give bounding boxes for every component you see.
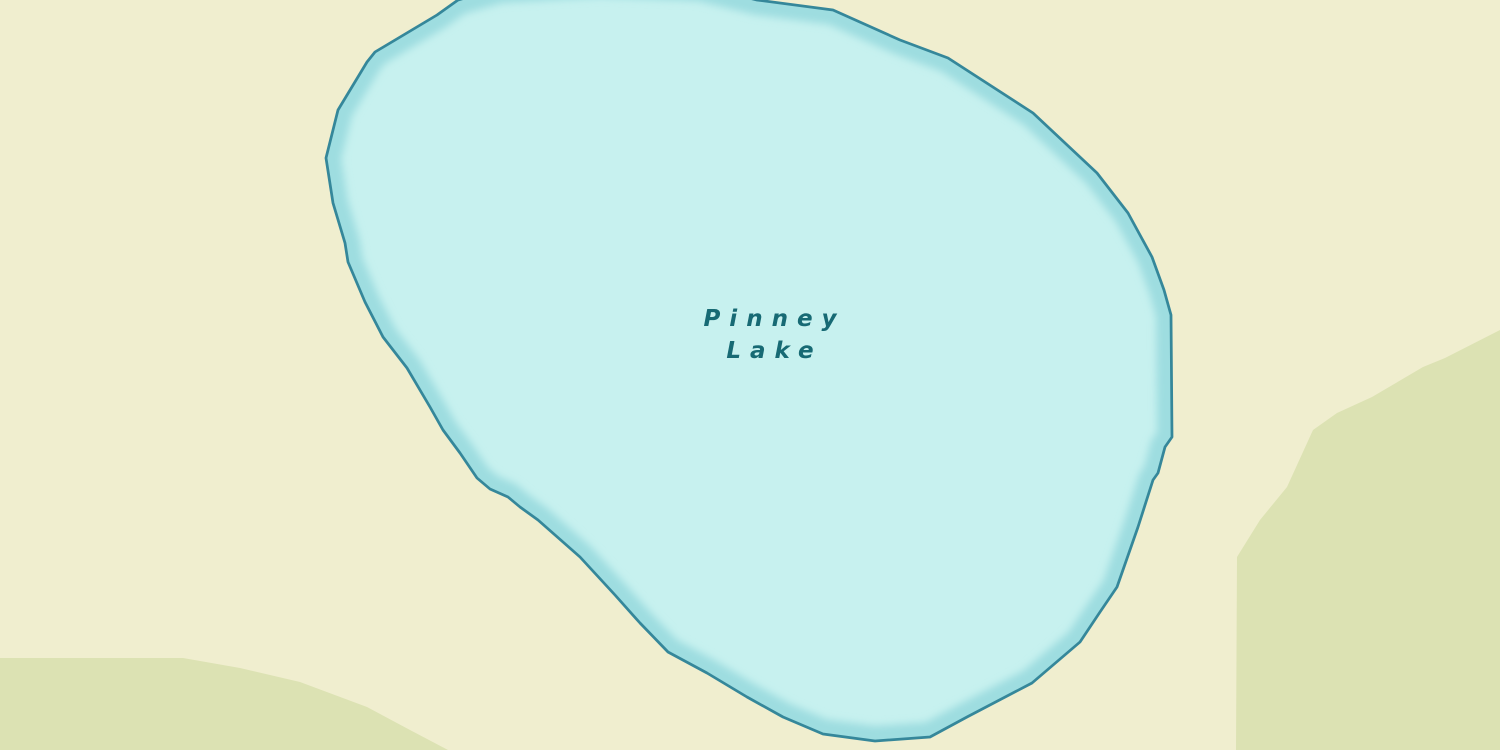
- map-canvas[interactable]: Pinney Lake: [0, 0, 1500, 750]
- map-render: [0, 0, 1500, 750]
